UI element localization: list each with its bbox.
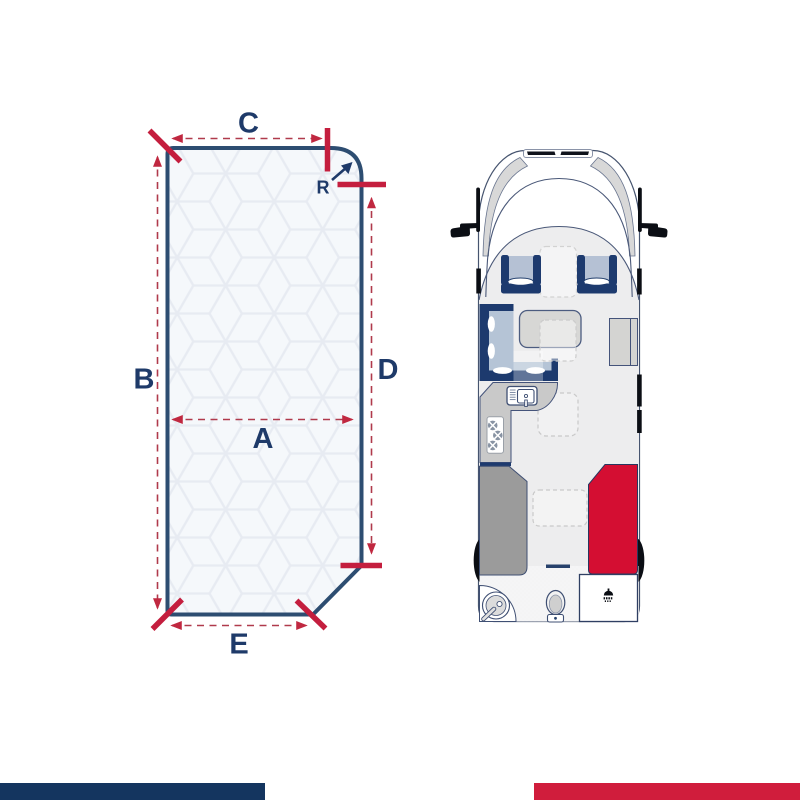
svg-text:D: D xyxy=(378,354,399,386)
svg-text:B: B xyxy=(134,364,155,396)
svg-text:E: E xyxy=(229,629,248,661)
svg-text:R: R xyxy=(317,178,330,198)
svg-text:A: A xyxy=(253,423,274,455)
svg-text:C: C xyxy=(238,107,259,139)
